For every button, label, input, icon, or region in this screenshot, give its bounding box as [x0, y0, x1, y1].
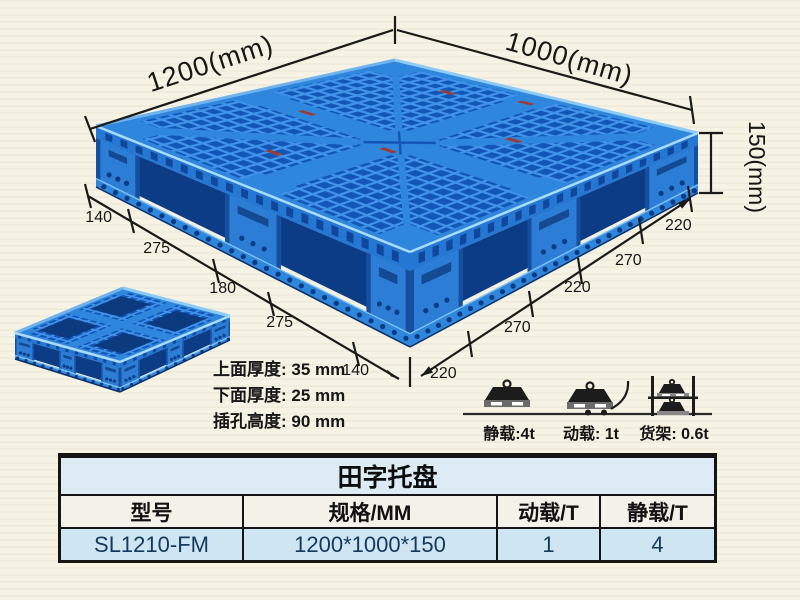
- cell-spec: 1200*1000*150: [242, 529, 496, 560]
- load-rating-icons: [463, 376, 712, 416]
- segment-label: 140: [342, 362, 369, 379]
- header-static-load: 静载/T: [599, 496, 714, 527]
- rack-load-label: 货架: 0.6t: [639, 420, 708, 444]
- pallet-artwork: [15, 60, 698, 392]
- spec-table-title: 田字托盘: [61, 458, 714, 496]
- header-spec: 规格/MM: [242, 496, 496, 527]
- depth-dimension-label: 1000(mm): [502, 26, 636, 91]
- note-socket-height: 插孔高度: 90 mm: [213, 409, 345, 435]
- height-dimension-label: 150(mm): [744, 121, 770, 213]
- note-bottom-thickness: 下面厚度: 25 mm: [213, 383, 345, 409]
- segment-label: 220: [430, 365, 457, 382]
- segment-label: 180: [209, 280, 236, 297]
- cell-model: SL1210-FM: [61, 529, 242, 560]
- segment-label: 220: [665, 217, 692, 234]
- dynamic-load-icon: [567, 381, 628, 416]
- segment-label: 140: [85, 209, 112, 226]
- static-load-label: 静载:4t: [483, 420, 535, 444]
- segment-label: 275: [266, 314, 293, 331]
- table-row: SL1210-FM 1200*1000*150 1 4: [61, 529, 714, 560]
- segment-label: 270: [504, 319, 531, 336]
- header-model: 型号: [61, 496, 242, 527]
- cell-static-load: 4: [599, 529, 714, 560]
- rack-load-icon: [648, 376, 698, 416]
- spec-table-header-row: 型号 规格/MM 动载/T 静载/T: [61, 496, 714, 529]
- dynamic-load-label: 动载: 1t: [563, 420, 619, 444]
- thickness-notes: 上面厚度: 35 mm 下面厚度: 25 mm 插孔高度: 90 mm: [213, 357, 345, 435]
- cell-dynamic-load: 1: [496, 529, 599, 560]
- spec-table: 田字托盘 型号 规格/MM 动载/T 静载/T SL1210-FM 1200*1…: [58, 453, 717, 563]
- product-spec-sheet: 1200(mm) 1000(mm) 150(mm) 140 275 180 27…: [0, 0, 800, 600]
- segment-label: 220: [564, 279, 591, 296]
- note-top-thickness: 上面厚度: 35 mm: [213, 357, 345, 383]
- segment-label: 270: [615, 252, 642, 269]
- static-load-icon: [484, 381, 530, 408]
- width-dimension-label: 1200(mm): [143, 29, 277, 98]
- header-dynamic-load: 动载/T: [496, 496, 599, 527]
- segment-label: 275: [143, 240, 170, 257]
